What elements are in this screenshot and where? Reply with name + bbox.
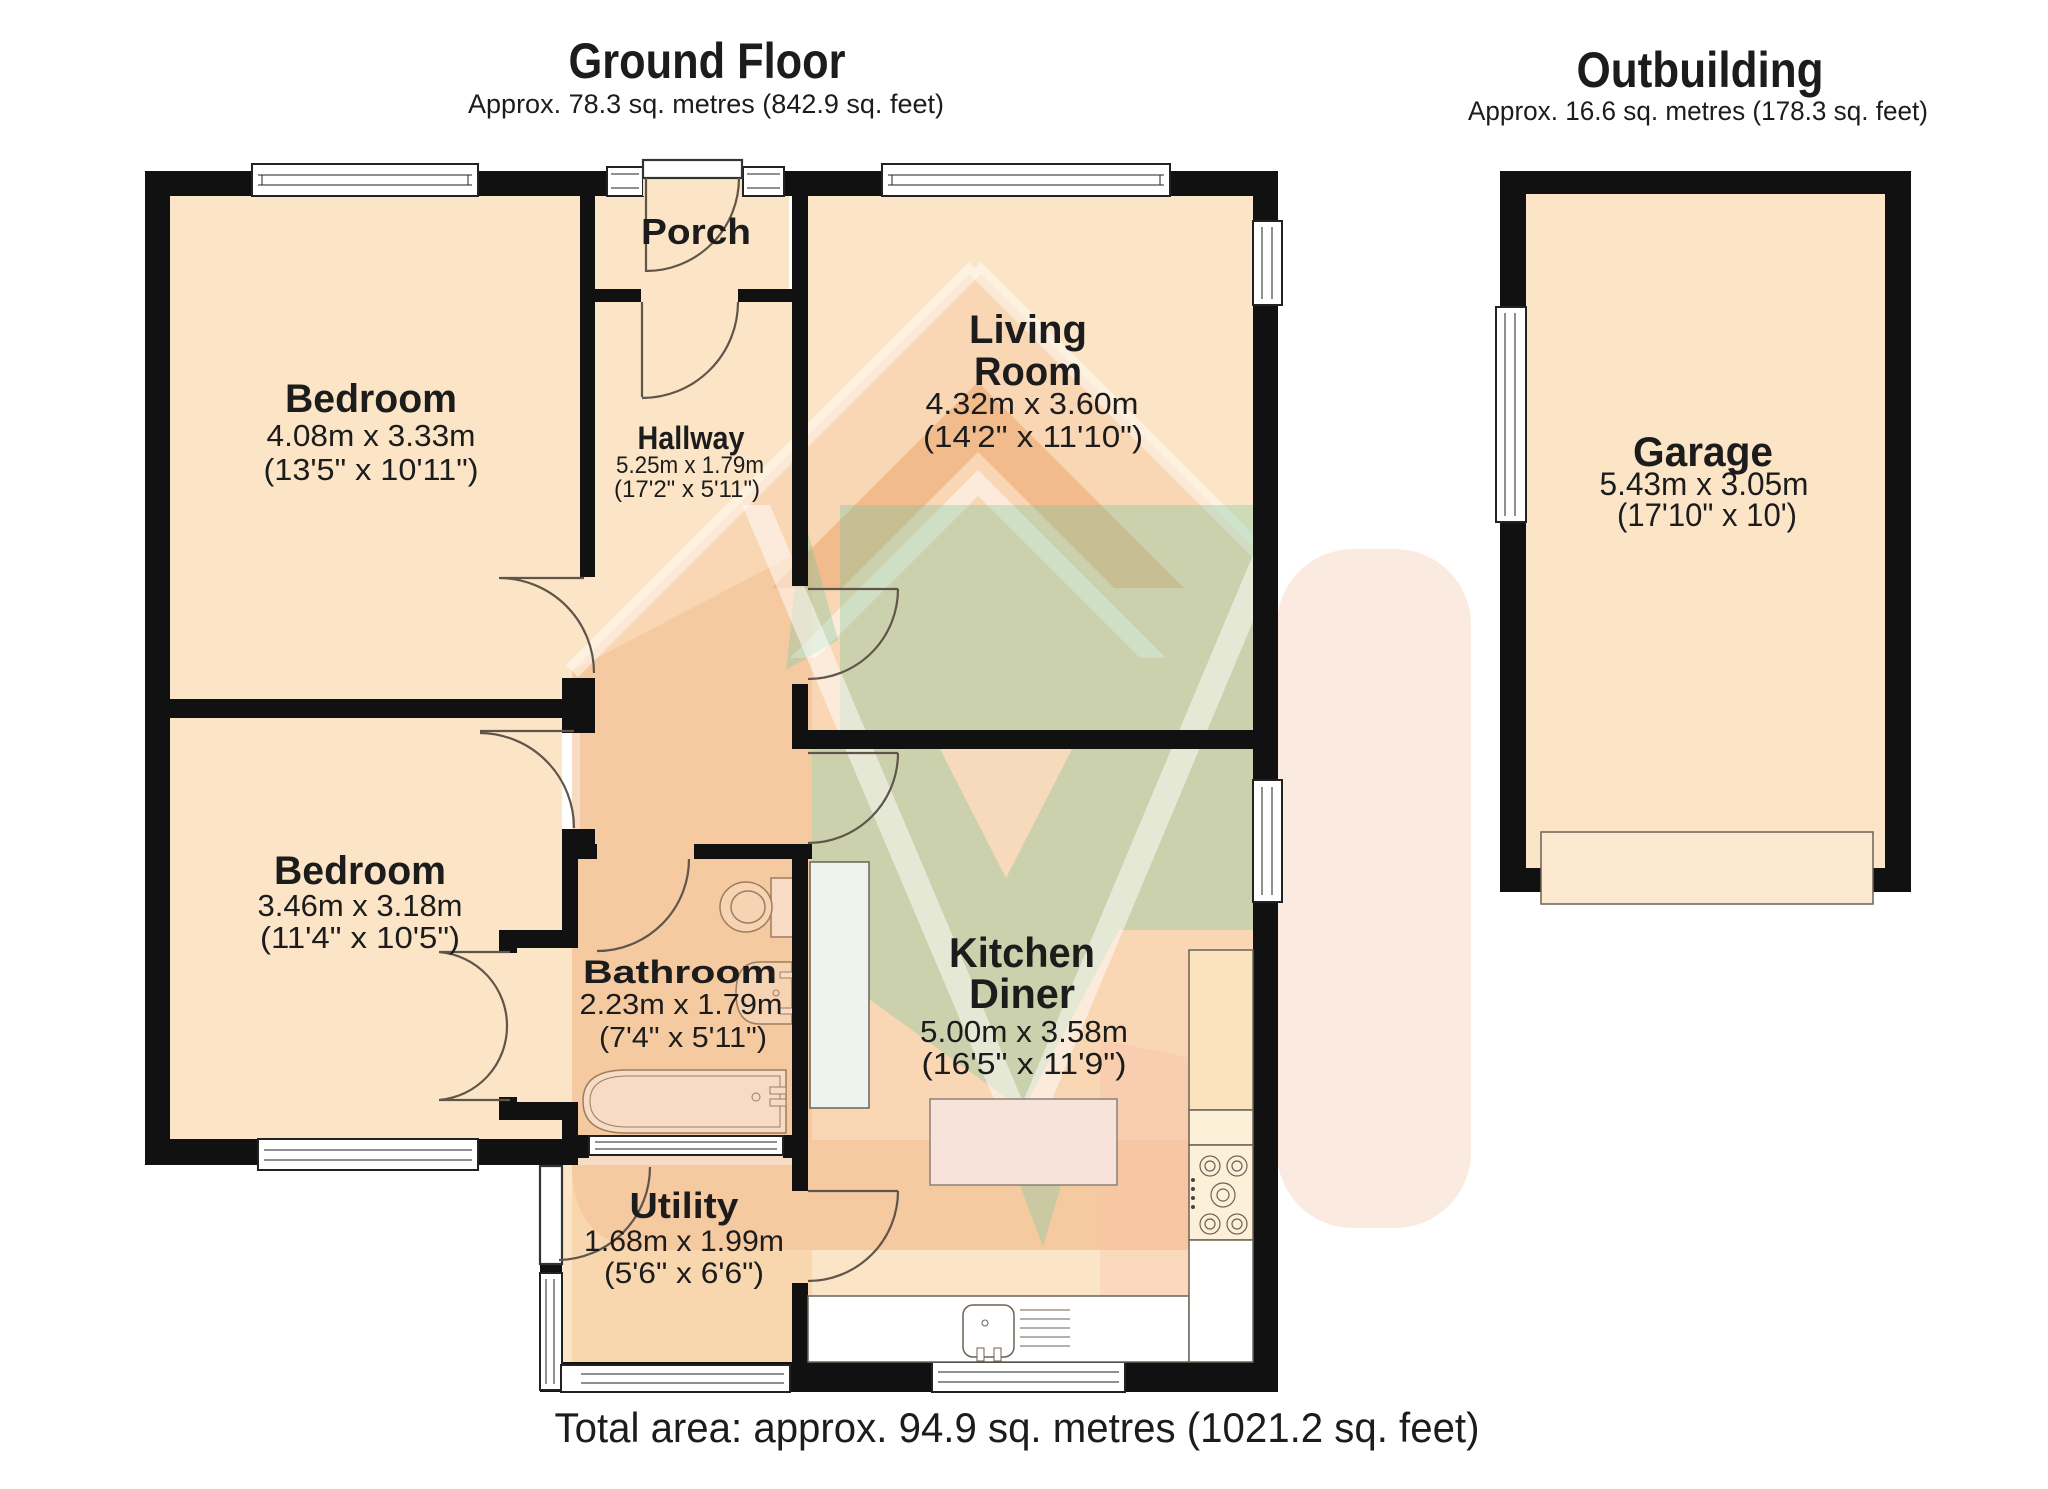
svg-text:5.00m x 3.58m: 5.00m x 3.58m <box>920 1014 1128 1049</box>
svg-text:Total area: approx. 94.9 sq. m: Total area: approx. 94.9 sq. metres (102… <box>555 1404 1480 1451</box>
svg-text:4.32m x 3.60m: 4.32m x 3.60m <box>926 386 1139 421</box>
svg-text:(17'10" x 10'): (17'10" x 10') <box>1617 497 1797 533</box>
svg-text:Hallway: Hallway <box>638 420 745 456</box>
svg-text:Approx. 78.3 sq. metres (842.9: Approx. 78.3 sq. metres (842.9 sq. feet) <box>468 89 944 119</box>
svg-text:4.08m x 3.33m: 4.08m x 3.33m <box>267 418 476 453</box>
svg-text:(14'2" x 11'10"): (14'2" x 11'10") <box>923 419 1143 454</box>
svg-text:Kitchen: Kitchen <box>949 929 1095 976</box>
svg-text:Ground Floor: Ground Floor <box>569 33 846 89</box>
svg-text:Porch: Porch <box>641 211 751 252</box>
svg-text:3.46m x 3.18m: 3.46m x 3.18m <box>258 888 463 923</box>
svg-text:Approx. 16.6 sq. metres (178.3: Approx. 16.6 sq. metres (178.3 sq. feet) <box>1468 96 1928 126</box>
svg-text:Bedroom: Bedroom <box>285 377 457 421</box>
svg-text:(11'4" x 10'5"): (11'4" x 10'5") <box>260 920 460 955</box>
svg-text:(13'5" x 10'11"): (13'5" x 10'11") <box>264 452 479 487</box>
svg-text:5.25m x 1.79m: 5.25m x 1.79m <box>616 452 764 479</box>
svg-text:(16'5" x 11'9"): (16'5" x 11'9") <box>922 1046 1127 1081</box>
svg-text:2.23m x 1.79m: 2.23m x 1.79m <box>580 989 783 1021</box>
svg-text:(5'6" x 6'6"): (5'6" x 6'6") <box>604 1257 764 1290</box>
svg-text:(7'4" x 5'11"): (7'4" x 5'11") <box>599 1022 767 1054</box>
svg-text:Outbuilding: Outbuilding <box>1577 42 1824 98</box>
svg-text:Utility: Utility <box>630 1185 739 1226</box>
svg-text:(17'2" x 5'11"): (17'2" x 5'11") <box>614 476 760 503</box>
svg-text:Bathroom: Bathroom <box>583 954 777 990</box>
svg-text:1.68m x 1.99m: 1.68m x 1.99m <box>584 1225 784 1258</box>
svg-text:Bedroom: Bedroom <box>274 849 446 893</box>
svg-text:Diner: Diner <box>969 970 1075 1017</box>
svg-text:Living: Living <box>969 308 1087 352</box>
